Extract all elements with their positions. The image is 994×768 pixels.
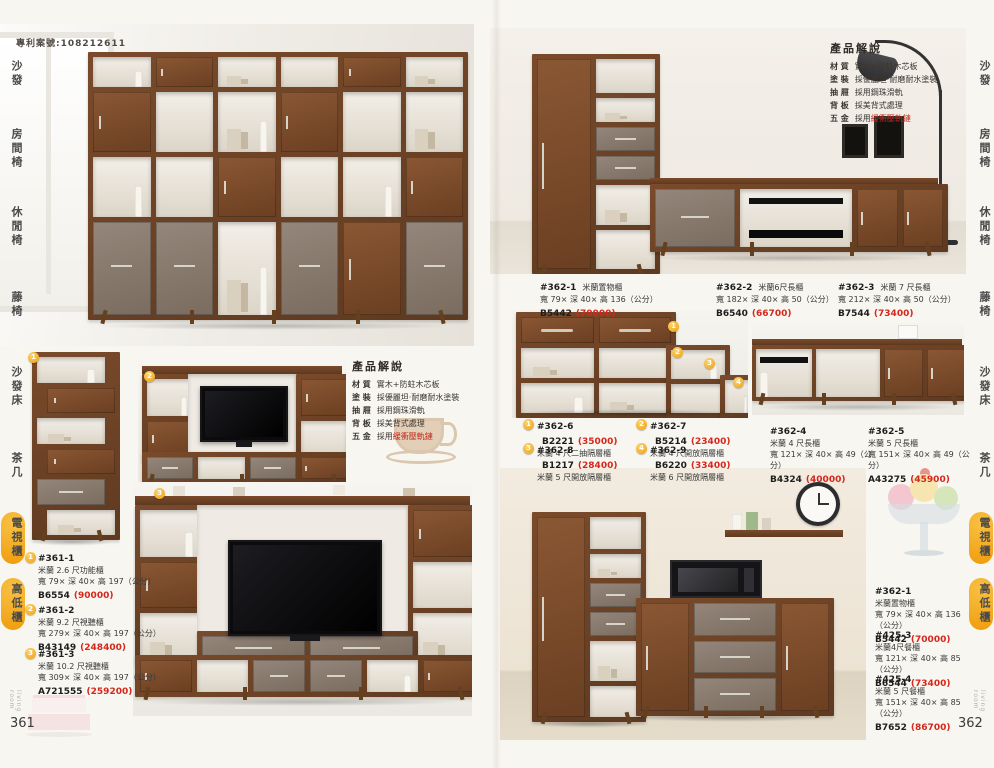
description-line: 抽 屜採用鋼珠滑軌	[352, 404, 502, 417]
drawer-front	[310, 660, 362, 692]
shelf-jar	[732, 514, 742, 530]
product-model: A43275	[868, 475, 906, 485]
sidebar-item-sofa-r: 沙發	[970, 60, 992, 88]
shelf-cell	[156, 157, 214, 217]
description-label: 塗 裝	[352, 393, 371, 402]
shelf-cell	[413, 613, 472, 660]
product-price: (66700)	[752, 309, 792, 319]
sidebar-label: 茶几	[10, 452, 23, 480]
deco-box	[898, 325, 918, 339]
product-price: (259200)	[87, 687, 133, 697]
description-line: 塗 裝採優麗坦·耐磨耐水塗裝	[830, 73, 970, 86]
right-column	[296, 374, 346, 462]
drawer-front	[596, 156, 655, 180]
shelf-cell	[406, 92, 464, 152]
floor-shadow	[650, 254, 938, 262]
tall-pantry-cabinet	[532, 512, 646, 722]
product-dims: 寬 151× 深 40× 高 49（公分）	[868, 449, 973, 471]
product-name: 米蘭4尺餐櫃	[875, 642, 970, 653]
description-text: 採優麗坦·耐磨耐水塗裝	[377, 393, 460, 402]
product-code: #362-5	[868, 427, 904, 437]
cabinet-door	[343, 57, 401, 87]
sidebar-item-leisure-chair: 休閒椅	[2, 206, 24, 248]
side-label-right: living room	[972, 690, 986, 716]
sidebar-item-tv-cabinet-r: 電視櫃	[970, 517, 992, 559]
shelf-cell	[599, 348, 672, 378]
product-dims: 寬 121× 深 40× 高 49（公分）	[770, 449, 875, 471]
description-text: 採用	[855, 114, 871, 123]
product-price: (90000)	[74, 591, 114, 601]
product-model: B6220	[655, 461, 687, 471]
description-text: 採用鋼珠滑軌	[855, 88, 903, 97]
product-code: #425-4	[875, 675, 911, 685]
description-label: 材 質	[830, 62, 849, 71]
product-name: 米蘭 9.2 尺視聽櫃	[38, 617, 198, 628]
sidebar-label: 房間椅	[978, 128, 991, 170]
marker-badge: 2	[636, 419, 647, 430]
product-price: (28400)	[578, 461, 618, 471]
shelf-cell	[37, 357, 105, 383]
low-cabinet-body	[752, 345, 964, 401]
sidebar-label: 休閒椅	[978, 206, 991, 248]
marker-badge: 1	[523, 419, 534, 430]
wood-drawer	[599, 317, 672, 343]
sidebar-item-tea-table-r: 茶几	[970, 452, 992, 480]
photo-marker: 4	[733, 377, 744, 388]
sundae-stem	[920, 522, 928, 550]
cake-bottom-layer	[28, 714, 90, 730]
shelf-cell	[47, 510, 115, 536]
cabinet-door	[406, 157, 464, 217]
furniture-leg	[850, 242, 854, 256]
sidebar-label: 休閒椅	[10, 206, 23, 248]
photo-marker: 2	[672, 347, 683, 358]
sundae-glass	[888, 504, 960, 524]
product-price: (33400)	[691, 461, 731, 471]
furniture-leg	[240, 474, 244, 481]
product-name: 米蘭 6 尺開放隔層櫃	[650, 472, 760, 483]
sidebar-label: 藤椅	[10, 291, 23, 319]
photo-dining-cabinet-scene	[500, 468, 866, 740]
shelf-cell	[343, 92, 401, 152]
description-text: 採優麗坦·耐磨耐水塗裝	[855, 75, 938, 84]
description-text: 實木+防蛀木芯板	[377, 380, 440, 389]
product-dims: 寬 151× 深 40× 高 85（公分）	[875, 697, 970, 719]
furniture-leg	[272, 310, 276, 324]
page-number-left: 361	[10, 716, 35, 731]
shelf-cell	[218, 222, 276, 315]
page-number-right: 362	[958, 716, 983, 731]
product-code: #362-9	[650, 446, 686, 456]
sidebar-item-tea-table: 茶几	[2, 452, 24, 480]
shelf-cell	[590, 641, 641, 681]
tall-storage-cabinet	[532, 54, 660, 274]
product-description-left: 產品解說 材 質實木+防蛀木芯板 塗 裝採優麗坦·耐磨耐水塗裝 抽 屜採用鋼珠滑…	[352, 358, 502, 443]
product-model: B5442	[540, 309, 572, 319]
shelf-cell	[413, 562, 472, 609]
shelf-cell	[596, 185, 655, 225]
sidebar-label: 沙發	[10, 60, 23, 88]
av-shelf	[740, 189, 852, 247]
cabinet-door	[301, 379, 346, 416]
furniture-leg	[704, 706, 708, 718]
description-line: 背 板採美背式處理	[830, 99, 970, 112]
product-name: 米蘭置物櫃	[875, 598, 970, 609]
product-name: 米蘭6尺長櫃	[758, 283, 803, 292]
base-cabinets	[142, 452, 346, 482]
shelf-cell	[93, 157, 151, 217]
description-text: 採用	[377, 432, 393, 441]
sidebar-label: 房間椅	[10, 128, 23, 170]
sidebar-label: 電視櫃	[10, 517, 23, 559]
sidebar-item-high-low-cabinet-r: 高低櫃	[970, 583, 992, 625]
product-dims: 寬 79× 深 40× 高 136（公分）	[540, 294, 700, 305]
cake-top-layer	[32, 698, 86, 712]
description-highlight: 緩衝壓軌鏈	[393, 432, 433, 441]
sidebar-item-rattan-chair-r: 藤椅	[970, 291, 992, 319]
drawer-front	[37, 479, 105, 505]
sidebar-item-tv-cabinet: 電視櫃	[2, 517, 24, 559]
product-code: #362-7	[650, 422, 686, 432]
shelf-cell	[596, 59, 655, 93]
shelf-cell	[590, 517, 641, 549]
shelf-cell	[218, 57, 276, 87]
product-model: A721555	[38, 687, 83, 697]
product-info-362-4: #362-4 米蘭 4 尺長櫃 寬 121× 深 40× 高 49（公分） B4…	[770, 423, 875, 486]
furniture-leg	[892, 393, 896, 405]
description-line: 抽 屜採用鋼珠滑軌	[830, 86, 970, 99]
description-title: 產品解說	[352, 358, 502, 374]
product-name: 米蘭置物櫃	[582, 283, 622, 292]
shelf-cell	[590, 686, 641, 717]
product-name: 米蘭 10.2 尺視聽櫃	[38, 661, 198, 672]
description-line: 背 板採美背式處理	[352, 417, 502, 430]
sidebar-label: 藤椅	[978, 291, 991, 319]
photo-marker: 3	[704, 358, 715, 369]
product-name: 米蘭 4 尺長櫃	[770, 438, 875, 449]
cabinet-door	[281, 92, 339, 152]
cabinet-door	[537, 59, 591, 269]
shelf-cell	[596, 230, 655, 269]
toaster-oven	[670, 560, 762, 598]
top-shelf	[135, 496, 470, 505]
wall-clock	[796, 482, 840, 526]
photo-wall-shelf-large	[0, 24, 474, 346]
sidebar-label: 沙發床	[10, 366, 23, 408]
tv-long-bench	[650, 184, 948, 252]
drawer-front	[655, 189, 735, 247]
photo-function-cabinet	[24, 348, 120, 550]
photo-media-wall-small	[138, 360, 346, 482]
product-model: B7652	[875, 723, 907, 733]
cabinet-door	[857, 189, 898, 247]
product-code: #362-3	[838, 283, 874, 293]
product-info-362-5: #362-5 米蘭 5 尺長櫃 寬 151× 深 40× 高 49（公分） A4…	[868, 423, 973, 486]
drawer-front	[694, 603, 776, 636]
description-label: 抽 屜	[352, 406, 371, 415]
cabinet-door	[343, 222, 401, 315]
cake-plate	[26, 732, 92, 737]
furniture-leg	[356, 310, 360, 324]
description-line: 材 質實木+防蛀木芯板	[830, 60, 970, 73]
av-shelf	[756, 349, 812, 397]
description-line: 五 金採用緩衝壓軌鏈	[830, 112, 970, 125]
top-shelf	[142, 366, 342, 374]
product-model: B6540	[716, 309, 748, 319]
product-name: 米蘭 2.6 尺功能櫃	[38, 565, 198, 576]
product-code: #362-1	[540, 283, 576, 293]
cabinet-door	[93, 92, 151, 152]
product-model: B6554	[38, 591, 70, 601]
sidebar-label: 沙發	[978, 60, 991, 88]
shelf-cell	[37, 418, 105, 444]
side-label-left: living room	[8, 690, 22, 716]
sidebar-item-sofa-bed: 沙發床	[2, 366, 24, 408]
function-cabinet-unit	[32, 352, 120, 540]
cabinet-door	[903, 189, 944, 247]
product-price: (73400)	[874, 309, 914, 319]
drawer-front	[694, 641, 776, 674]
step-unit-tall	[516, 312, 676, 418]
furniture-leg	[760, 706, 764, 718]
deco-items	[173, 486, 185, 496]
drawer-front	[406, 222, 464, 315]
oven-dials	[744, 568, 754, 592]
cabinet-door	[641, 603, 689, 711]
cabinet-door	[218, 157, 276, 217]
cabinet-door	[884, 349, 923, 397]
product-info-361-3: #361-3 米蘭 10.2 尺視聽櫃 寬 309× 深 40× 高 197（公…	[38, 646, 198, 698]
tv-screen	[228, 540, 382, 636]
product-dims: 寬 279× 深 40× 高 197（公分）	[38, 628, 198, 639]
sidebar-item-sofa-bed-r: 沙發床	[970, 366, 992, 408]
shelf-cell	[93, 57, 151, 87]
wall-shelf-unit	[88, 52, 468, 320]
shelf-jar	[746, 512, 758, 530]
cabinet-door	[537, 517, 585, 717]
marker-badge: 4	[636, 443, 647, 454]
tv-screen	[200, 386, 288, 442]
description-label: 五 金	[352, 432, 371, 441]
description-label: 背 板	[830, 101, 849, 110]
shelf-cell	[406, 57, 464, 87]
product-name: 米蘭 5 尺開放隔層櫃	[537, 472, 647, 483]
furniture-leg	[822, 393, 826, 405]
product-code: #362-4	[770, 427, 806, 437]
floor-shadow	[756, 403, 960, 411]
product-info-361-1: #361-1 米蘭 2.6 尺功能櫃 寬 79× 深 40× 高 197（公分）…	[38, 550, 198, 602]
shelf-cell	[816, 349, 880, 397]
furniture-leg	[359, 687, 363, 700]
marker-badge: 2	[25, 604, 36, 615]
shelf-cell	[147, 379, 193, 416]
furniture-leg	[190, 310, 194, 324]
shelf-cell	[218, 92, 276, 152]
description-text: 採美背式處理	[377, 419, 425, 428]
page-fold	[492, 0, 501, 768]
product-dims: 寬 79× 深 40× 高 197（公分）	[38, 576, 198, 587]
product-code: #362-2	[716, 283, 752, 293]
sidebar-label: 高低櫃	[10, 583, 23, 625]
furniture-leg	[750, 242, 754, 256]
product-code: #361-2	[38, 606, 74, 616]
photo-marker: 2	[144, 371, 155, 382]
cabinet-door	[47, 449, 115, 475]
wood-drawer	[521, 317, 594, 343]
sidebar-item-bedroom-chair-r: 房間椅	[970, 128, 992, 170]
product-info-425-4: #425-4 米蘭 5 尺餐櫃 寬 151× 深 40× 高 85（公分） B7…	[875, 671, 970, 734]
description-line: 五 金採用緩衝壓軌鏈	[352, 430, 502, 443]
product-dims: 寬 309× 深 40× 高 197（公分）	[38, 672, 198, 683]
description-line: 塗 裝採優麗坦·耐磨耐水塗裝	[352, 391, 502, 404]
shelf-jar	[762, 518, 771, 530]
product-price: (86700)	[911, 723, 951, 733]
marker-badge: 1	[25, 552, 36, 563]
patent-number: 專利案號:108212611	[16, 36, 126, 49]
marker-badge: 3	[523, 443, 534, 454]
drawer-stack	[694, 603, 776, 711]
product-info-362-8: #362-8 B1217(28400) 米蘭 5 尺開放隔層櫃	[537, 442, 647, 483]
product-model: B1217	[542, 461, 574, 471]
wall-shelf	[725, 530, 843, 537]
description-text: 採美背式處理	[855, 101, 903, 110]
product-code: #362-1	[875, 587, 911, 597]
product-model: B7544	[838, 309, 870, 319]
cabinet-door	[927, 349, 964, 397]
product-code: #362-8	[537, 446, 573, 456]
drawer-front	[253, 660, 305, 692]
product-description-right: 產品解說 材 質實木+防蛀木芯板 塗 裝採優麗坦·耐磨耐水塗裝 抽 屜採用鋼珠滑…	[830, 40, 970, 125]
product-name: 米蘭 7 尺長櫃	[880, 283, 930, 292]
drawer-front	[590, 583, 641, 607]
drawer-front	[93, 222, 151, 315]
description-label: 抽 屜	[830, 88, 849, 97]
description-title: 產品解說	[830, 40, 970, 56]
product-price: (40000)	[806, 475, 846, 485]
product-code: #361-1	[38, 554, 74, 564]
drawer-front	[250, 457, 296, 479]
description-text: 採用鋼珠滑軌	[377, 406, 425, 415]
sidebar-item-leisure-chair-r: 休閒椅	[970, 206, 992, 248]
sidebar-item-bedroom-chair: 房間椅	[2, 128, 24, 170]
picture-frame	[842, 124, 868, 158]
description-line: 材 質實木+防蛀木芯板	[352, 378, 502, 391]
product-code: #362-6	[537, 422, 573, 432]
shelf-cell	[156, 92, 214, 152]
drawer-front	[156, 222, 214, 315]
cabinet-door	[301, 457, 346, 479]
cabinet-door	[423, 660, 472, 692]
shelf-cell	[343, 157, 401, 217]
shelf-cell	[281, 57, 339, 87]
product-name: 米蘭 5 尺長櫃	[868, 438, 973, 449]
shelf-cell	[590, 554, 641, 578]
drawer-front	[596, 127, 655, 151]
sidebar-item-high-low-cabinet: 高低櫃	[2, 583, 24, 625]
marker-badge: 3	[25, 648, 36, 659]
coffee-saucer	[386, 450, 456, 464]
sidebar-item-rattan-chair: 藤椅	[2, 291, 24, 319]
floor-shadow	[640, 714, 824, 722]
drawer-front	[590, 612, 641, 636]
description-label: 塗 裝	[830, 75, 849, 84]
cabinet-door	[47, 388, 115, 414]
product-price: (70000)	[576, 309, 616, 319]
furniture-leg	[243, 687, 247, 700]
product-model: B4324	[770, 475, 802, 485]
catalog-spread: 專利案號:108212611 沙發 房間椅 休閒椅 藤椅 沙發床 茶几 電視櫃 …	[0, 0, 994, 768]
drawer-front	[281, 222, 339, 315]
description-label: 五 金	[830, 114, 849, 123]
oven-glass	[678, 568, 738, 592]
product-code: #361-3	[38, 650, 74, 660]
shelf-cell	[197, 660, 249, 692]
description-label: 材 質	[352, 380, 371, 389]
photo-marker: 1	[28, 352, 39, 363]
shelf-cell	[596, 98, 655, 122]
product-info-362-9: #362-9 B6220(33400) 米蘭 6 尺開放隔層櫃	[650, 442, 760, 483]
sidebar-label: 電視櫃	[978, 517, 991, 559]
sidebar-label: 高低櫃	[978, 583, 991, 625]
sundae-base	[904, 550, 944, 556]
photo-low-tv-cabinet	[752, 323, 964, 415]
sidebar-label: 沙發床	[978, 366, 991, 408]
photo-marker: 3	[154, 488, 165, 499]
shelf-cell	[521, 348, 594, 378]
cabinet-door	[413, 510, 472, 557]
cabinet-door	[781, 603, 829, 711]
window-bar	[46, 38, 51, 294]
floor-shadow	[516, 409, 746, 417]
shelf-cell	[367, 660, 419, 692]
cabinet-door	[156, 57, 214, 87]
floor-shadow	[143, 698, 463, 706]
sideboard	[636, 598, 834, 716]
product-info-362-1: #362-1米蘭置物櫃 寬 79× 深 40× 高 136（公分） B5442(…	[540, 279, 700, 320]
product-code: #425-3	[875, 631, 911, 641]
photo-marker: 1	[668, 321, 679, 332]
shelf-cell	[281, 157, 339, 217]
sidebar-label: 茶几	[978, 452, 991, 480]
product-name: 米蘭 5 尺餐櫃	[875, 686, 970, 697]
sidebar-item-sofa: 沙發	[2, 60, 24, 88]
description-text: 實木+防蛀木芯板	[855, 62, 918, 71]
description-label: 背 板	[352, 419, 371, 428]
description-highlight: 緩衝壓軌鏈	[871, 114, 911, 123]
shelf-cell	[198, 457, 244, 479]
product-price: (45900)	[910, 475, 950, 485]
